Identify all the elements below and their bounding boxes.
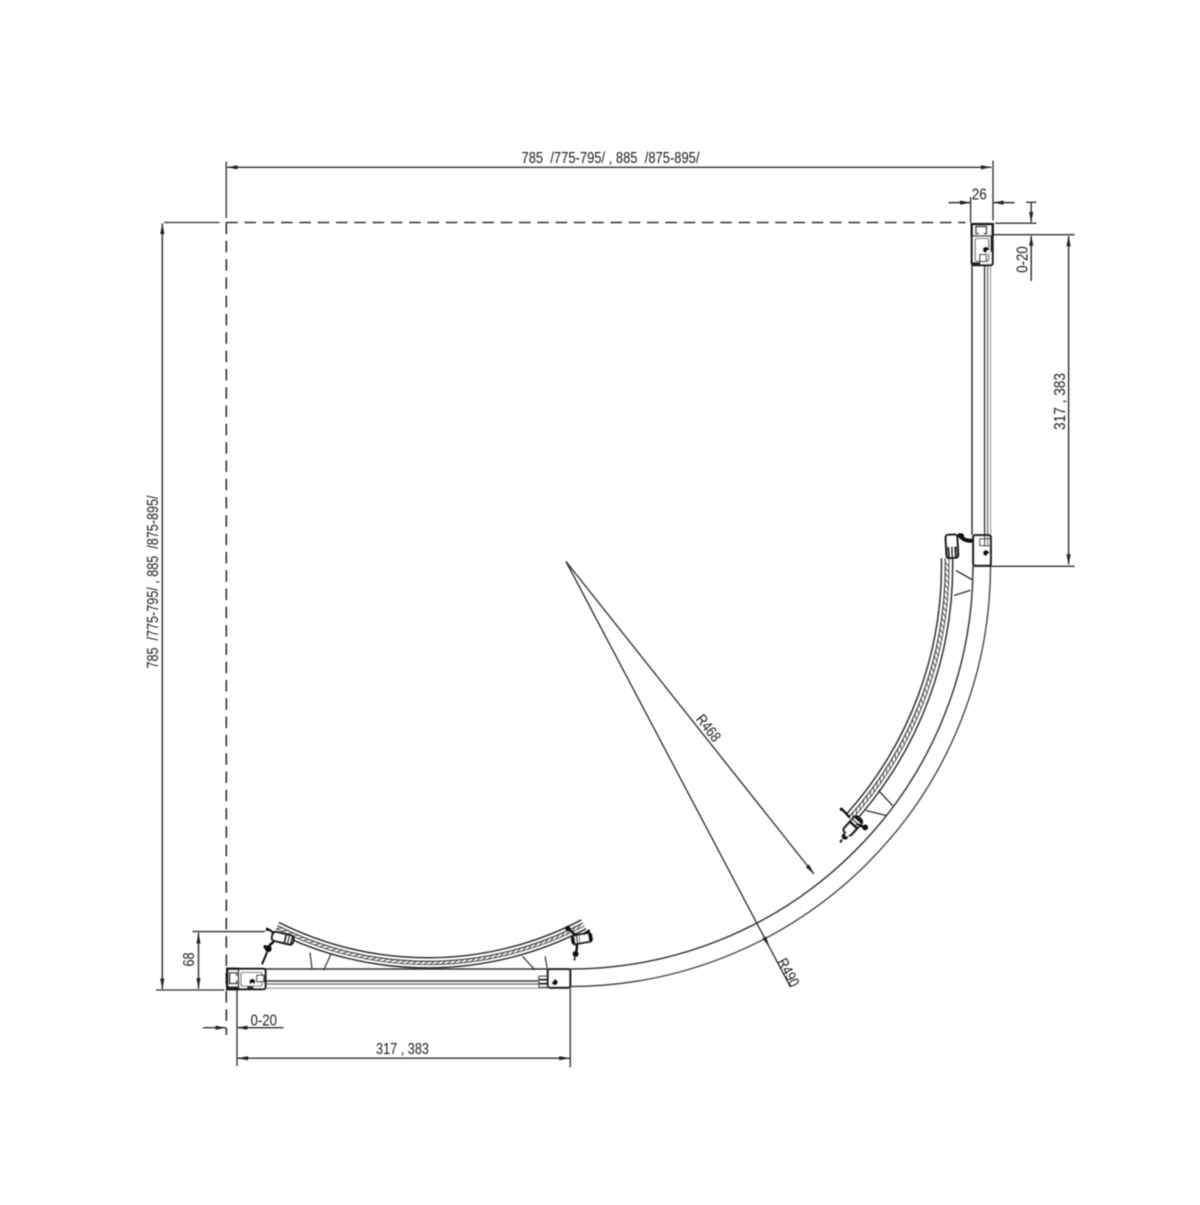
svg-text:68: 68 bbox=[181, 953, 198, 967]
svg-text:785 /775-795/ , 885 /875-895: 785 /775-795/ , 885 /875-895/ bbox=[145, 495, 162, 669]
svg-text:0-20: 0-20 bbox=[251, 1013, 278, 1030]
svg-text:317 , 383: 317 , 383 bbox=[376, 1041, 429, 1058]
svg-text:317 , 383: 317 , 383 bbox=[1052, 373, 1069, 430]
svg-text:785 /775-795/ , 885 /875-895: 785 /775-795/ , 885 /875-895/ bbox=[522, 150, 701, 167]
svg-text:0-20: 0-20 bbox=[1015, 246, 1032, 273]
svg-text:26: 26 bbox=[972, 186, 987, 203]
